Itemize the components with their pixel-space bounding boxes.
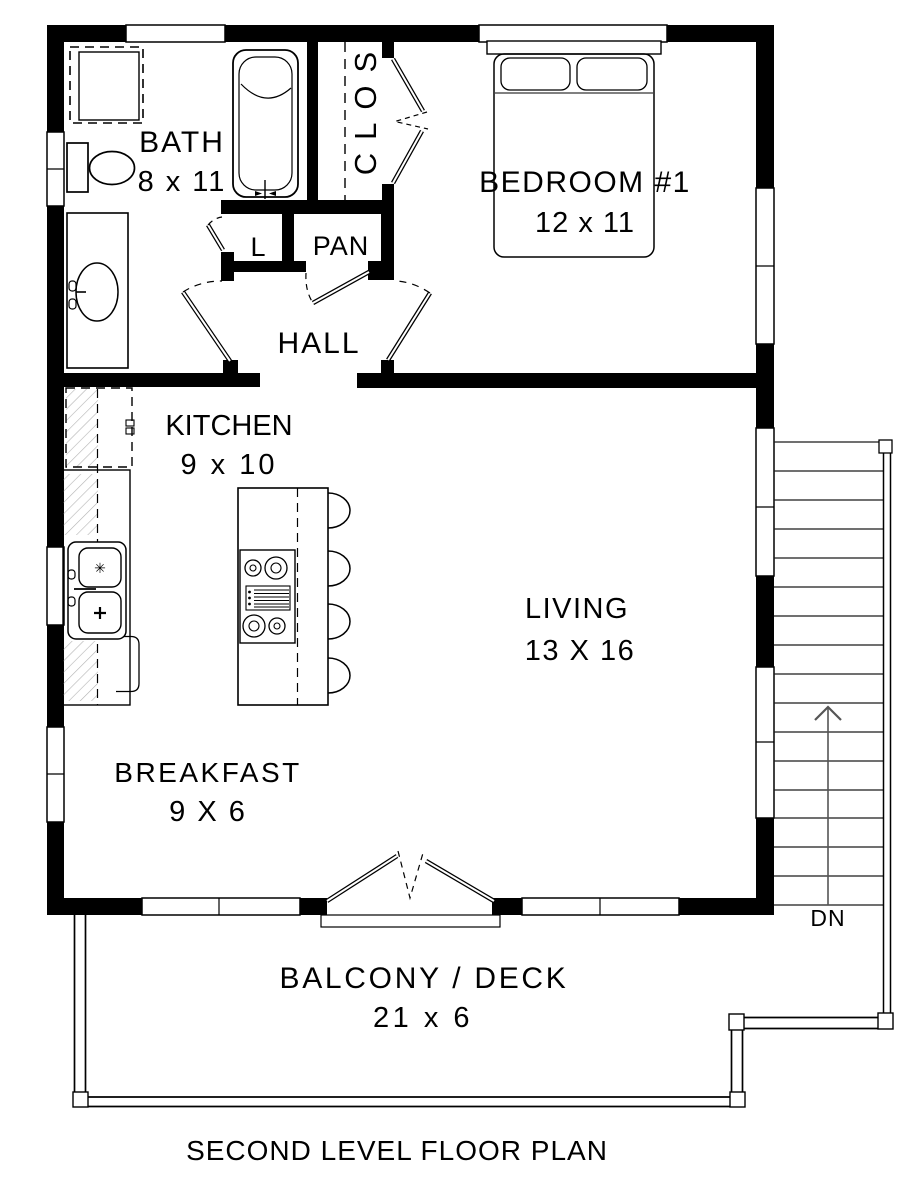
- svg-text:12 x 11: 12 x 11: [535, 207, 635, 239]
- svg-text:LIVING: LIVING: [525, 593, 629, 625]
- svg-text:HALL: HALL: [277, 327, 360, 360]
- svg-text:✳: ✳: [94, 560, 106, 576]
- svg-text:13 X 16: 13 X 16: [525, 635, 635, 667]
- svg-text:BEDROOM #1: BEDROOM #1: [479, 166, 691, 199]
- svg-text:BREAKFAST: BREAKFAST: [114, 757, 301, 788]
- svg-text:BATH: BATH: [139, 126, 225, 159]
- svg-text:L: L: [250, 232, 265, 262]
- svg-text:CLOS: CLOS: [348, 39, 383, 175]
- svg-text:KITCHEN: KITCHEN: [165, 410, 292, 442]
- svg-text:SECOND LEVEL FLOOR PLAN: SECOND LEVEL FLOOR PLAN: [186, 1135, 608, 1166]
- svg-text:BALCONY / DECK: BALCONY / DECK: [280, 962, 569, 995]
- svg-text:21 x 6: 21 x 6: [373, 1002, 473, 1034]
- svg-text:9 x 10: 9 x 10: [181, 449, 278, 481]
- svg-text:PAN: PAN: [313, 231, 370, 261]
- svg-text:8 x 11: 8 x 11: [138, 166, 227, 198]
- svg-text:9 X 6: 9 X 6: [169, 796, 247, 828]
- svg-text:DN: DN: [810, 905, 845, 931]
